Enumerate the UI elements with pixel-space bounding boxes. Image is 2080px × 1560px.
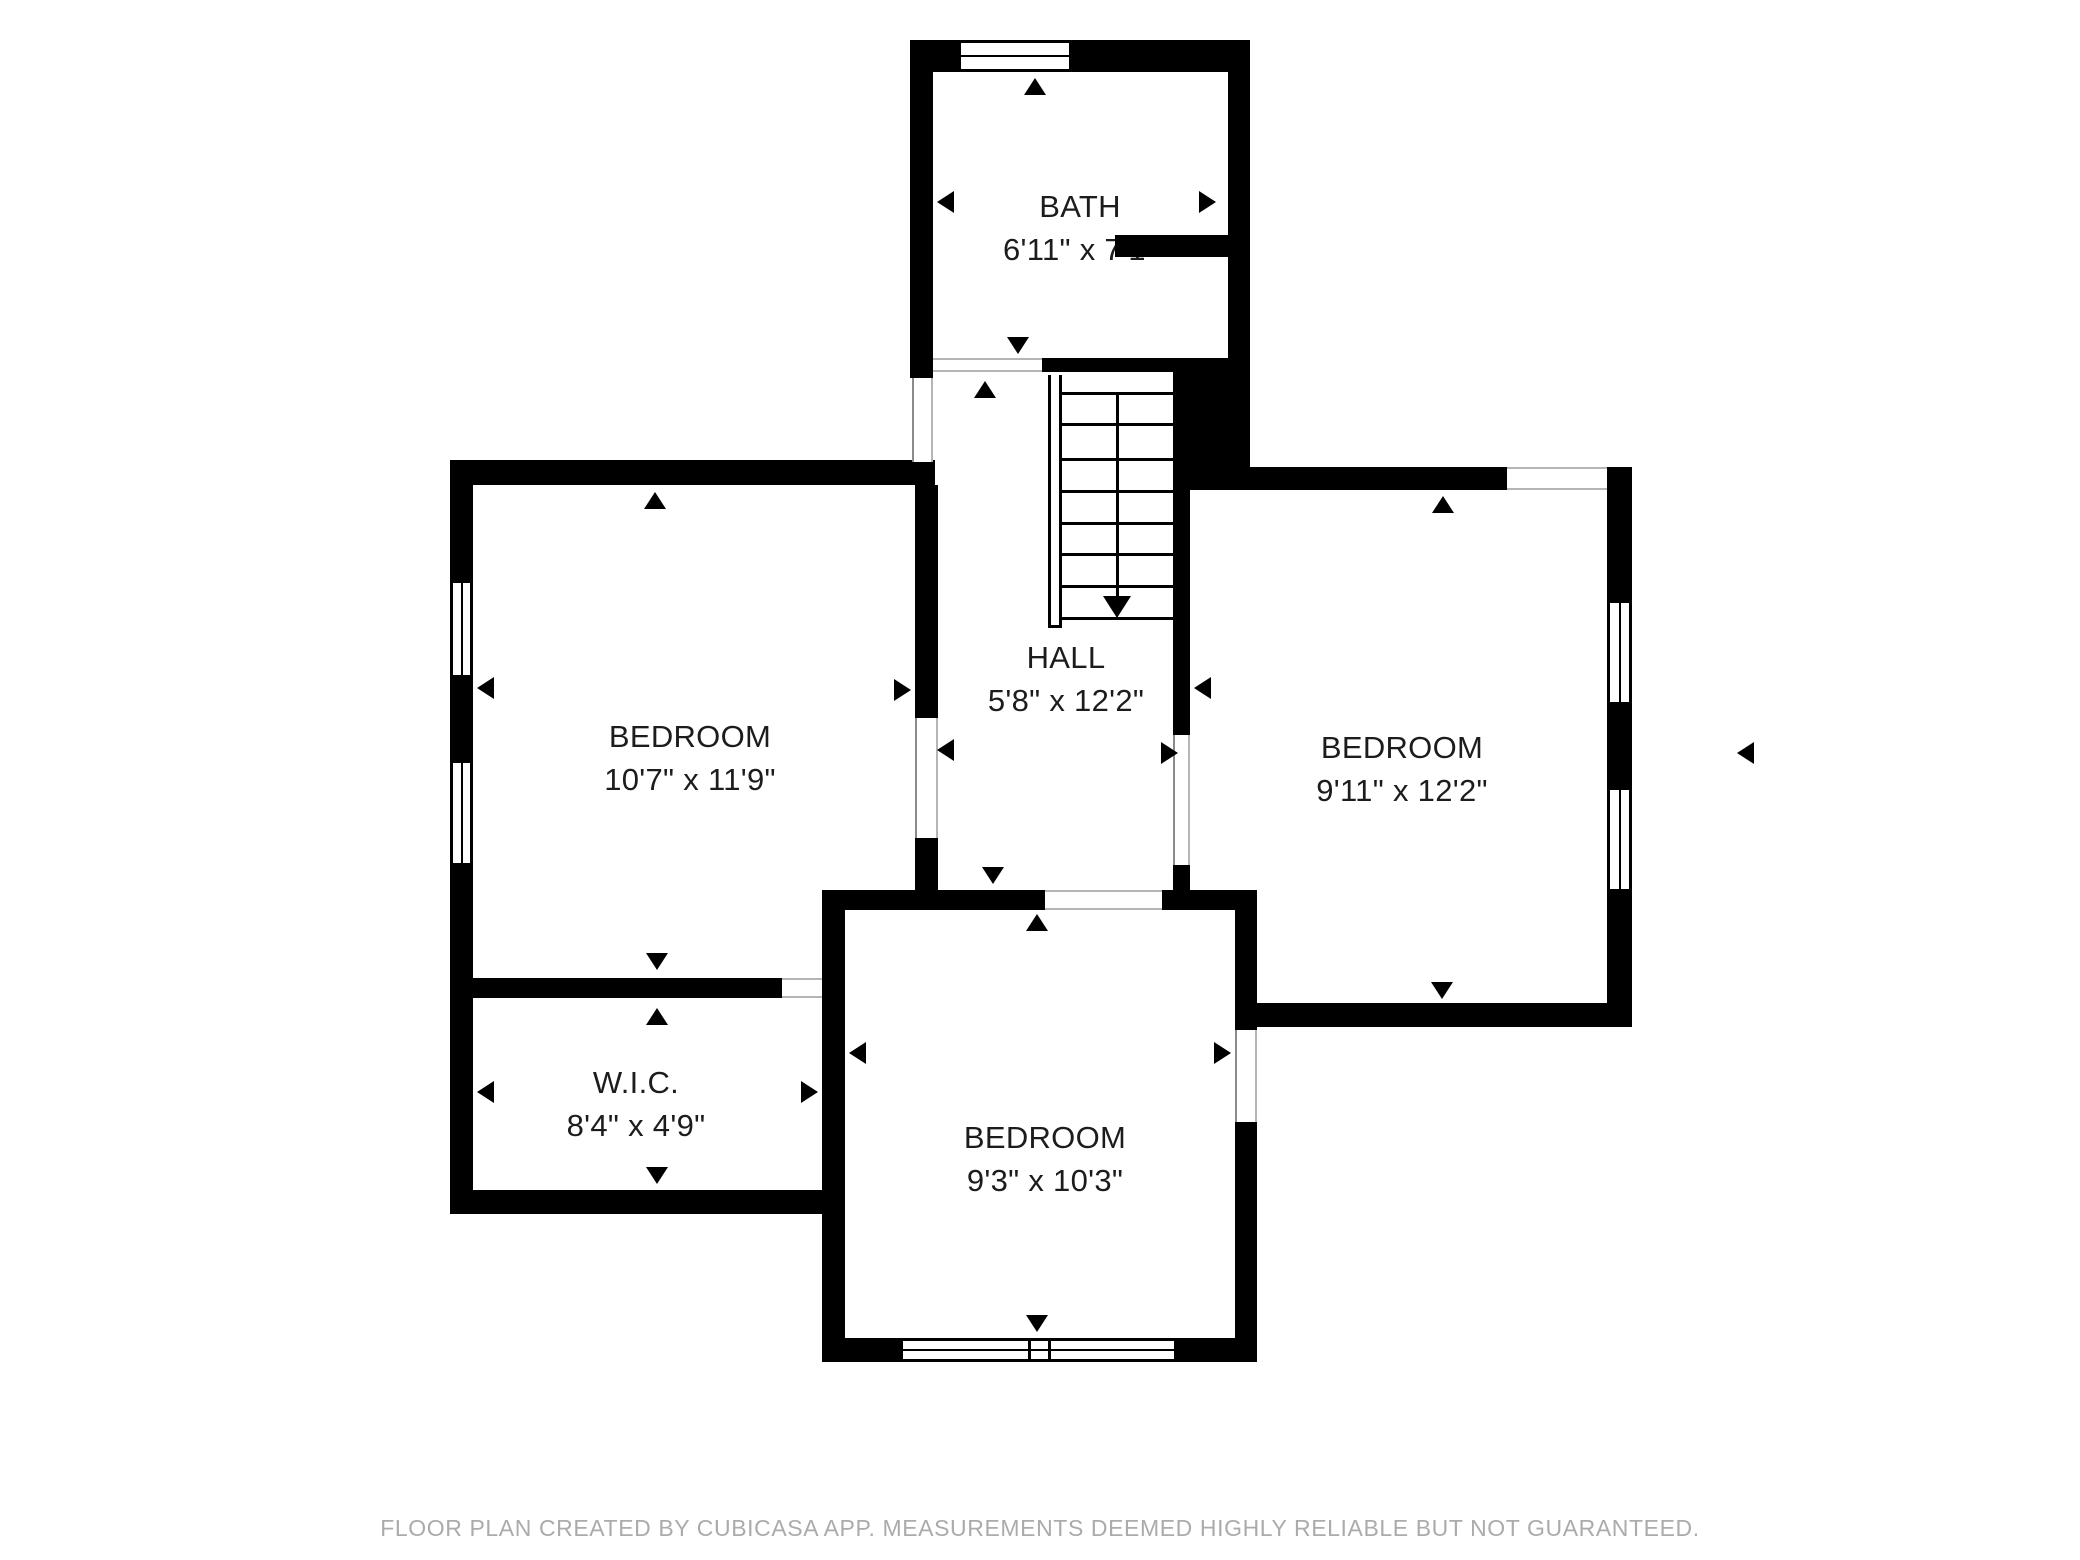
measure-arrow-left bbox=[1194, 677, 1211, 699]
window-midline bbox=[461, 762, 463, 864]
doorway-opening bbox=[1507, 467, 1607, 490]
measure-arrow-up bbox=[1026, 914, 1048, 931]
room-label-bath: BATH 6'11" x 7'1" bbox=[1003, 185, 1157, 271]
measure-arrow-right bbox=[1214, 1042, 1231, 1064]
measure-arrow-left bbox=[849, 1042, 866, 1064]
wall-segment bbox=[822, 1338, 900, 1362]
floor-plan-canvas: BATH 6'11" x 7'1" HALL 5'8" x 12'2" BEDR… bbox=[0, 0, 2080, 1560]
measure-arrow-down bbox=[646, 1167, 668, 1184]
room-name: BATH bbox=[1003, 185, 1157, 228]
measure-arrow-left bbox=[937, 739, 954, 761]
room-label-wic: W.I.C. 8'4" x 4'9" bbox=[567, 1061, 706, 1147]
measure-arrow-left bbox=[1737, 742, 1754, 764]
measure-arrow-up bbox=[974, 381, 996, 398]
measure-arrow-up bbox=[1024, 78, 1046, 95]
measure-arrow-up bbox=[1432, 496, 1454, 513]
wall-segment bbox=[910, 40, 933, 378]
wall-segment bbox=[1072, 40, 1250, 72]
measure-arrow-down bbox=[646, 953, 668, 970]
measure-arrow-right bbox=[1199, 191, 1216, 213]
room-name: BEDROOM bbox=[1316, 726, 1488, 769]
doorway-opening bbox=[915, 718, 938, 838]
wall-segment bbox=[1248, 1003, 1632, 1027]
wall-segment bbox=[450, 460, 935, 485]
wall-segment bbox=[1607, 705, 1632, 787]
wall-segment bbox=[1177, 1338, 1257, 1362]
room-name: W.I.C. bbox=[567, 1061, 706, 1104]
doorway-opening bbox=[1235, 1030, 1257, 1122]
wall-segment bbox=[915, 838, 938, 892]
wall-segment bbox=[1607, 467, 1632, 600]
measure-arrow-left bbox=[477, 677, 494, 699]
stair-handrail bbox=[1048, 375, 1062, 628]
measure-arrow-down bbox=[1026, 1315, 1048, 1332]
room-name: BEDROOM bbox=[604, 715, 776, 758]
disclaimer-text: FLOOR PLAN CREATED BY CUBICASA APP. MEAS… bbox=[380, 1515, 1700, 1542]
window-symbol bbox=[1607, 787, 1632, 892]
measure-arrow-up bbox=[644, 492, 666, 509]
room-name: HALL bbox=[988, 636, 1144, 679]
measure-arrow-right bbox=[801, 1081, 818, 1103]
wall-segment bbox=[822, 890, 845, 1362]
room-name: BEDROOM bbox=[964, 1116, 1126, 1159]
window-midline bbox=[902, 1349, 1175, 1351]
room-dimensions: 8'4" x 4'9" bbox=[567, 1104, 706, 1147]
window-midline bbox=[960, 55, 1070, 57]
measure-arrow-up bbox=[646, 1008, 668, 1025]
room-label-bedroom-bottom: BEDROOM 9'3" x 10'3" bbox=[964, 1116, 1126, 1202]
window-midline bbox=[1619, 789, 1621, 890]
measure-arrow-down bbox=[1007, 337, 1029, 354]
window-midline bbox=[461, 582, 463, 676]
doorway-opening bbox=[933, 358, 1042, 372]
wall-segment bbox=[1173, 865, 1190, 892]
measure-arrow-down bbox=[1103, 596, 1131, 618]
wall-segment bbox=[1235, 1122, 1257, 1340]
room-label-bedroom-right: BEDROOM 9'11" x 12'2" bbox=[1316, 726, 1488, 812]
stair-direction-line bbox=[1116, 392, 1119, 598]
window-symbol bbox=[1607, 600, 1632, 705]
room-dimensions: 10'7" x 11'9" bbox=[604, 758, 776, 801]
wall-segment bbox=[1173, 467, 1507, 490]
wall-segment bbox=[1042, 358, 1173, 372]
room-label-bedroom-left: BEDROOM 10'7" x 11'9" bbox=[604, 715, 776, 801]
doorway-opening bbox=[1045, 890, 1162, 910]
room-dimensions: 9'11" x 12'2" bbox=[1316, 769, 1488, 812]
wall-segment bbox=[1228, 40, 1250, 360]
window-symbol bbox=[900, 1338, 1177, 1362]
room-dimensions: 5'8" x 12'2" bbox=[988, 679, 1144, 722]
measure-arrow-right bbox=[1161, 742, 1178, 764]
window-mullion bbox=[1028, 1340, 1031, 1360]
measure-arrow-right bbox=[894, 679, 911, 701]
measure-arrow-left bbox=[937, 191, 954, 213]
doorway-opening bbox=[782, 978, 822, 998]
wall-segment bbox=[473, 978, 782, 998]
window-symbol bbox=[958, 40, 1072, 72]
wall-segment bbox=[1173, 490, 1190, 735]
doorway-opening bbox=[912, 378, 933, 462]
wall-segment bbox=[450, 1190, 845, 1214]
window-symbol bbox=[450, 760, 473, 866]
window-midline bbox=[1619, 602, 1621, 703]
wall-segment bbox=[1115, 235, 1228, 257]
wall-segment bbox=[915, 485, 938, 718]
measure-arrow-left bbox=[477, 1081, 494, 1103]
wall-segment bbox=[822, 890, 1045, 910]
measure-arrow-down bbox=[1431, 982, 1453, 999]
window-symbol bbox=[450, 580, 473, 678]
room-label-hall: HALL 5'8" x 12'2" bbox=[988, 636, 1144, 722]
room-dimensions: 9'3" x 10'3" bbox=[964, 1159, 1126, 1202]
window-mullion bbox=[1048, 1340, 1051, 1360]
measure-arrow-down bbox=[982, 867, 1004, 884]
